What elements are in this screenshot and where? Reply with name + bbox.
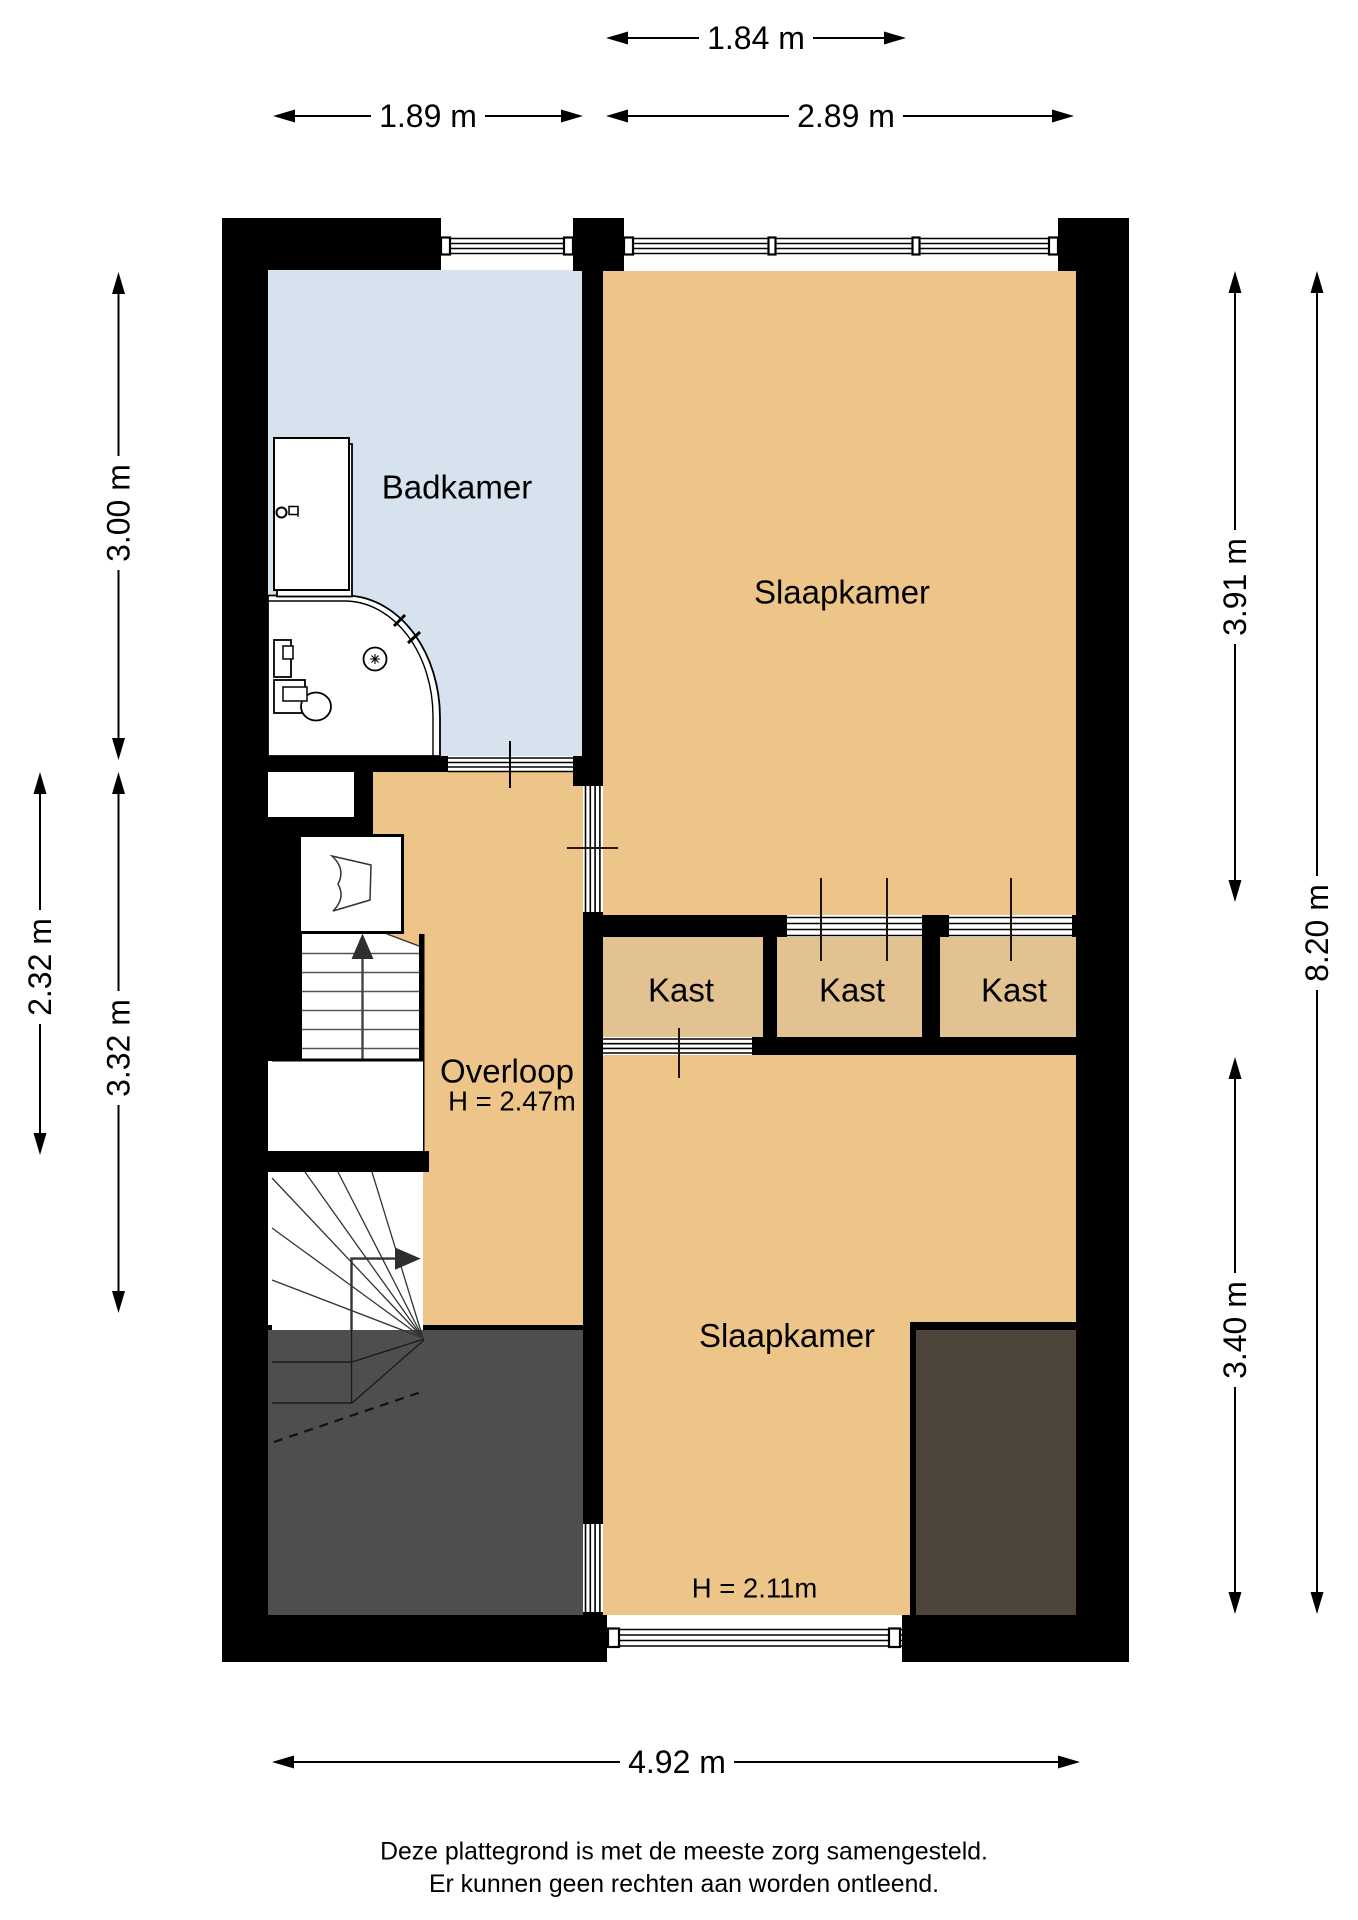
svg-text:Slaapkamer: Slaapkamer bbox=[754, 574, 930, 611]
svg-text:3.00 m: 3.00 m bbox=[101, 464, 137, 562]
svg-text:Kast: Kast bbox=[981, 972, 1047, 1009]
svg-text:Deze plattegrond is met de mee: Deze plattegrond is met de meeste zorg s… bbox=[380, 1839, 988, 1866]
svg-text:1.89 m: 1.89 m bbox=[379, 98, 477, 134]
svg-text:Overloop: Overloop bbox=[440, 1053, 574, 1090]
svg-text:3.40 m: 3.40 m bbox=[1217, 1281, 1253, 1379]
svg-text:4.92 m: 4.92 m bbox=[628, 1744, 726, 1780]
svg-text:Badkamer: Badkamer bbox=[382, 469, 532, 506]
svg-text:H = 2.47m: H = 2.47m bbox=[448, 1086, 576, 1117]
svg-text:3.91 m: 3.91 m bbox=[1217, 538, 1253, 636]
svg-text:Kast: Kast bbox=[819, 972, 885, 1009]
svg-text:1.84 m: 1.84 m bbox=[707, 20, 805, 56]
svg-text:Slaapkamer: Slaapkamer bbox=[699, 1317, 875, 1354]
svg-text:8.20 m: 8.20 m bbox=[1299, 884, 1335, 982]
svg-text:Er kunnen geen rechten aan wor: Er kunnen geen rechten aan worden ontlee… bbox=[429, 1871, 939, 1898]
svg-text:2.89 m: 2.89 m bbox=[797, 98, 895, 134]
svg-text:3.32 m: 3.32 m bbox=[101, 999, 137, 1097]
svg-text:H = 2.11m: H = 2.11m bbox=[692, 1573, 818, 1604]
svg-text:2.32 m: 2.32 m bbox=[22, 918, 58, 1016]
svg-text:Kast: Kast bbox=[648, 972, 714, 1009]
